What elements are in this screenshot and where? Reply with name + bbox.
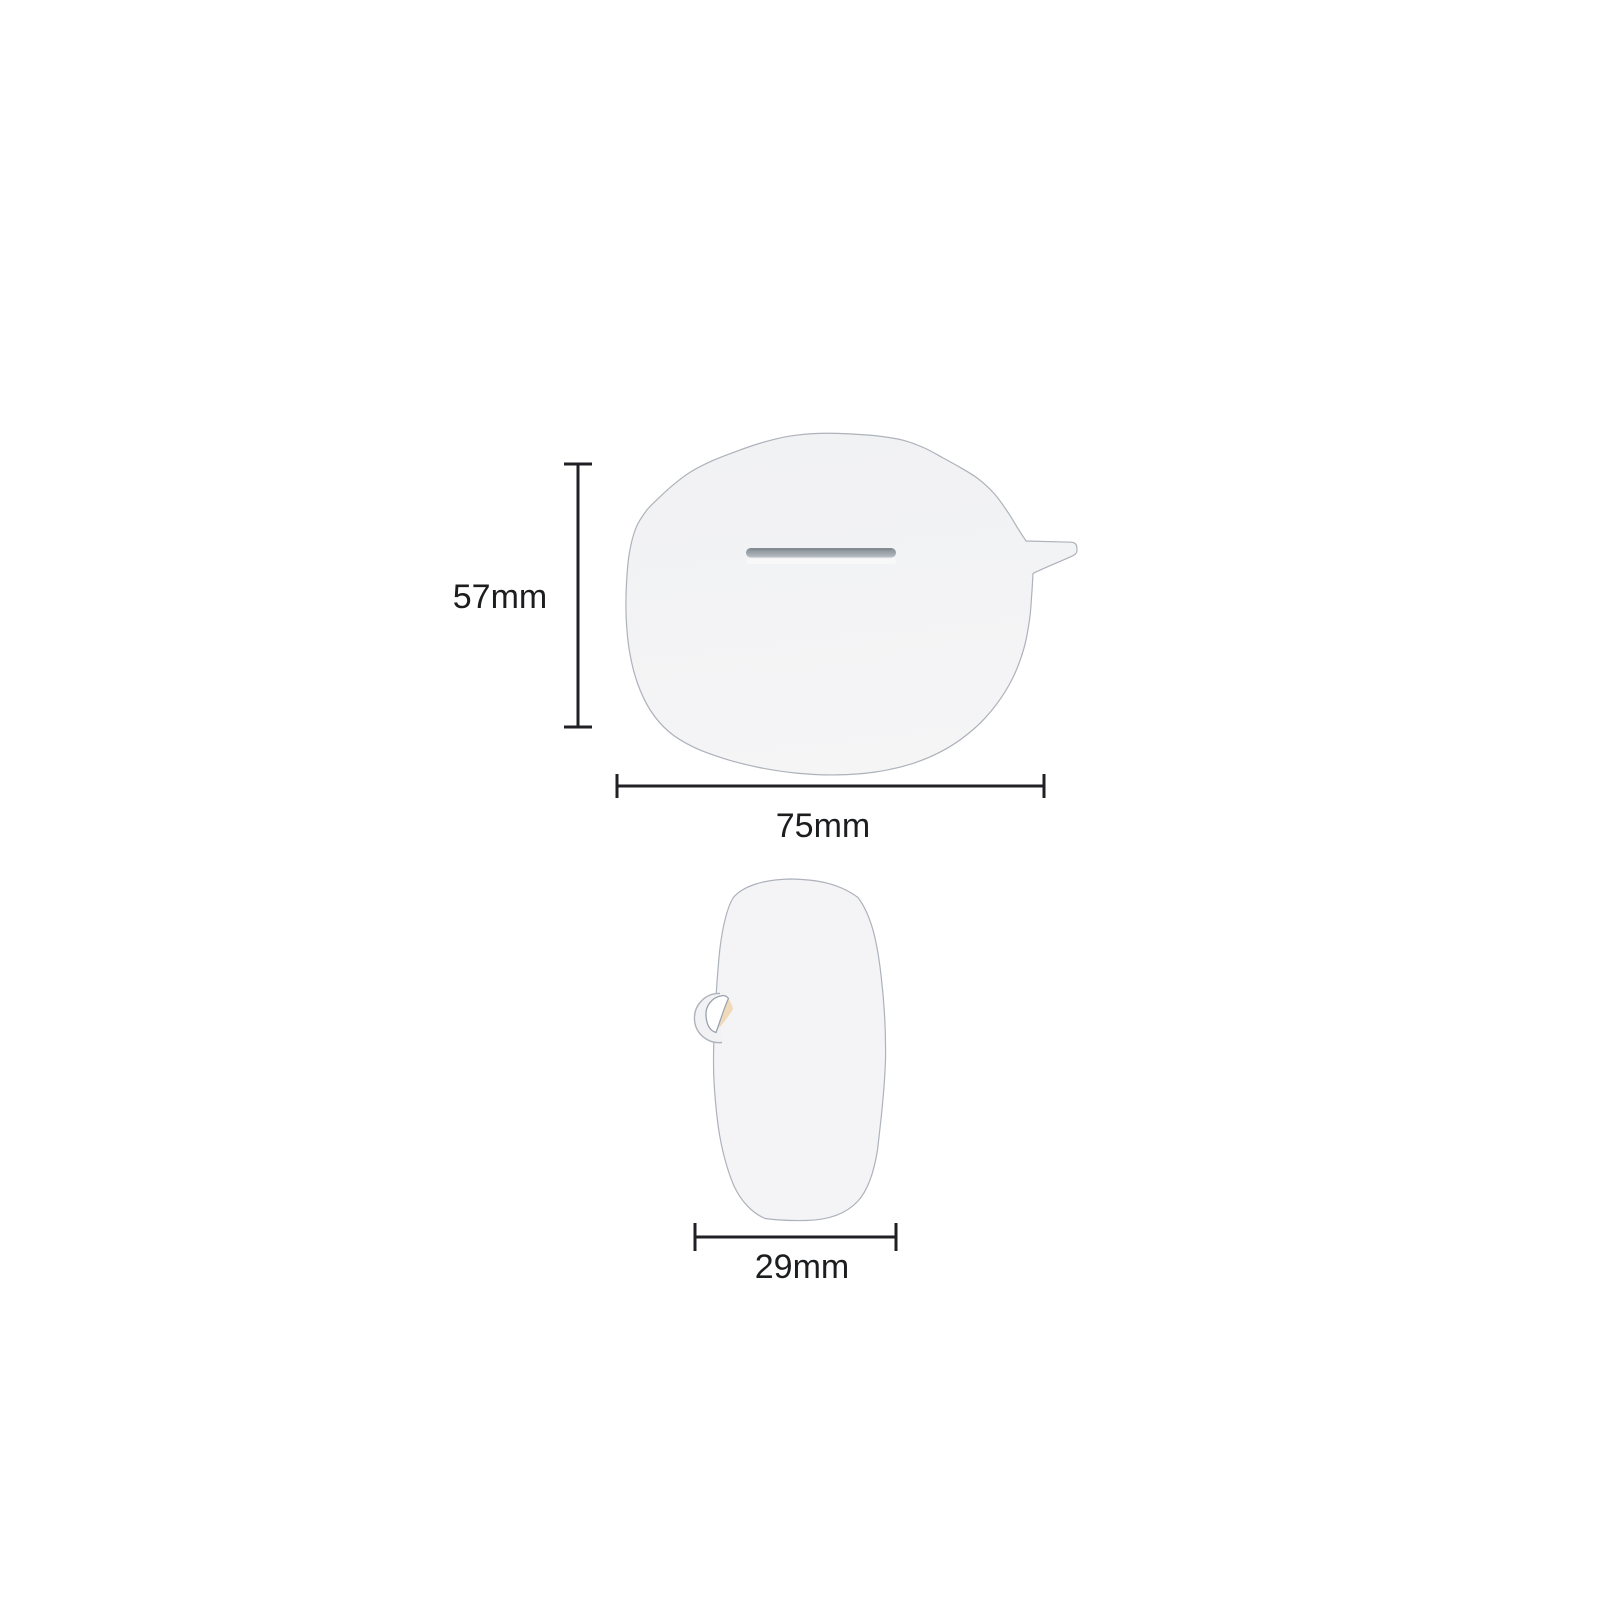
svg-text:57mm: 57mm — [453, 578, 547, 616]
svg-text:29mm: 29mm — [755, 1248, 849, 1286]
svg-text:75mm: 75mm — [776, 807, 870, 845]
